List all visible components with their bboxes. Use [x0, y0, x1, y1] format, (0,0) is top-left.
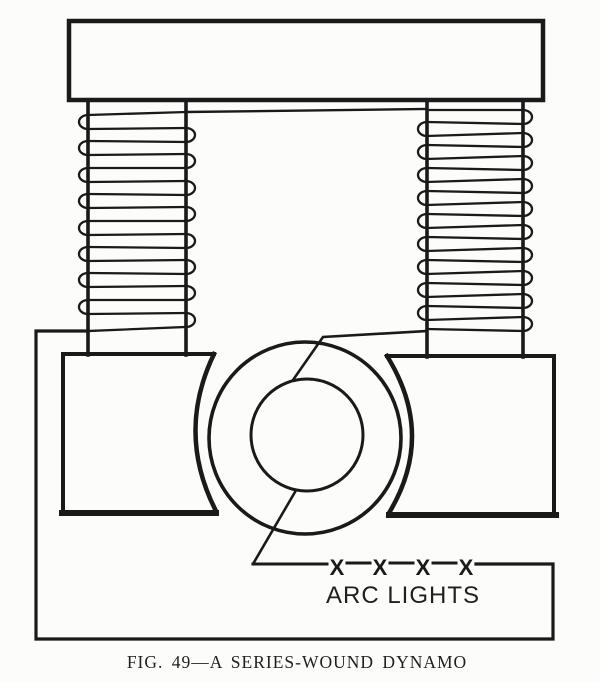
left-field-coil: [79, 112, 195, 331]
arc-lamps-row: X X X X: [330, 555, 474, 580]
arc-lamp-icon: X: [416, 555, 431, 580]
left-pole-core-edges: [88, 100, 186, 355]
yoke: [69, 21, 543, 100]
field-coil-connecting-wire: [186, 109, 427, 112]
left-pole-shoe-face-arc: [195, 354, 216, 511]
series-wound-dynamo-diagram: X X X X ARC LIGHTS FIG. 49—A SERIES-WOUN…: [0, 0, 600, 682]
right-pole-shoe: [387, 356, 556, 515]
arc-lights-label: ARC LIGHTS: [326, 582, 480, 609]
arc-lamp-icon: X: [330, 555, 345, 580]
armature-outer-circle: [209, 342, 401, 534]
figure-caption: FIG. 49—A SERIES-WOUND DYNAMO: [127, 652, 467, 672]
left-pole-core: [88, 100, 186, 355]
left-pole-shoe: [62, 354, 216, 513]
figure-page: X X X X ARC LIGHTS FIG. 49—A SERIES-WOUN…: [0, 0, 600, 682]
armature-commutator-circle: [251, 379, 363, 491]
armature-lead-to-arc-lights: [253, 492, 295, 564]
right-field-coil: [418, 110, 532, 331]
arc-lamp-icon: X: [459, 555, 474, 580]
arc-lamp-icon: X: [373, 555, 388, 580]
right-coil-face-wires: [427, 110, 523, 331]
left-pole-shoe-outline: [63, 354, 214, 513]
left-coil-face-wires: [88, 112, 186, 331]
